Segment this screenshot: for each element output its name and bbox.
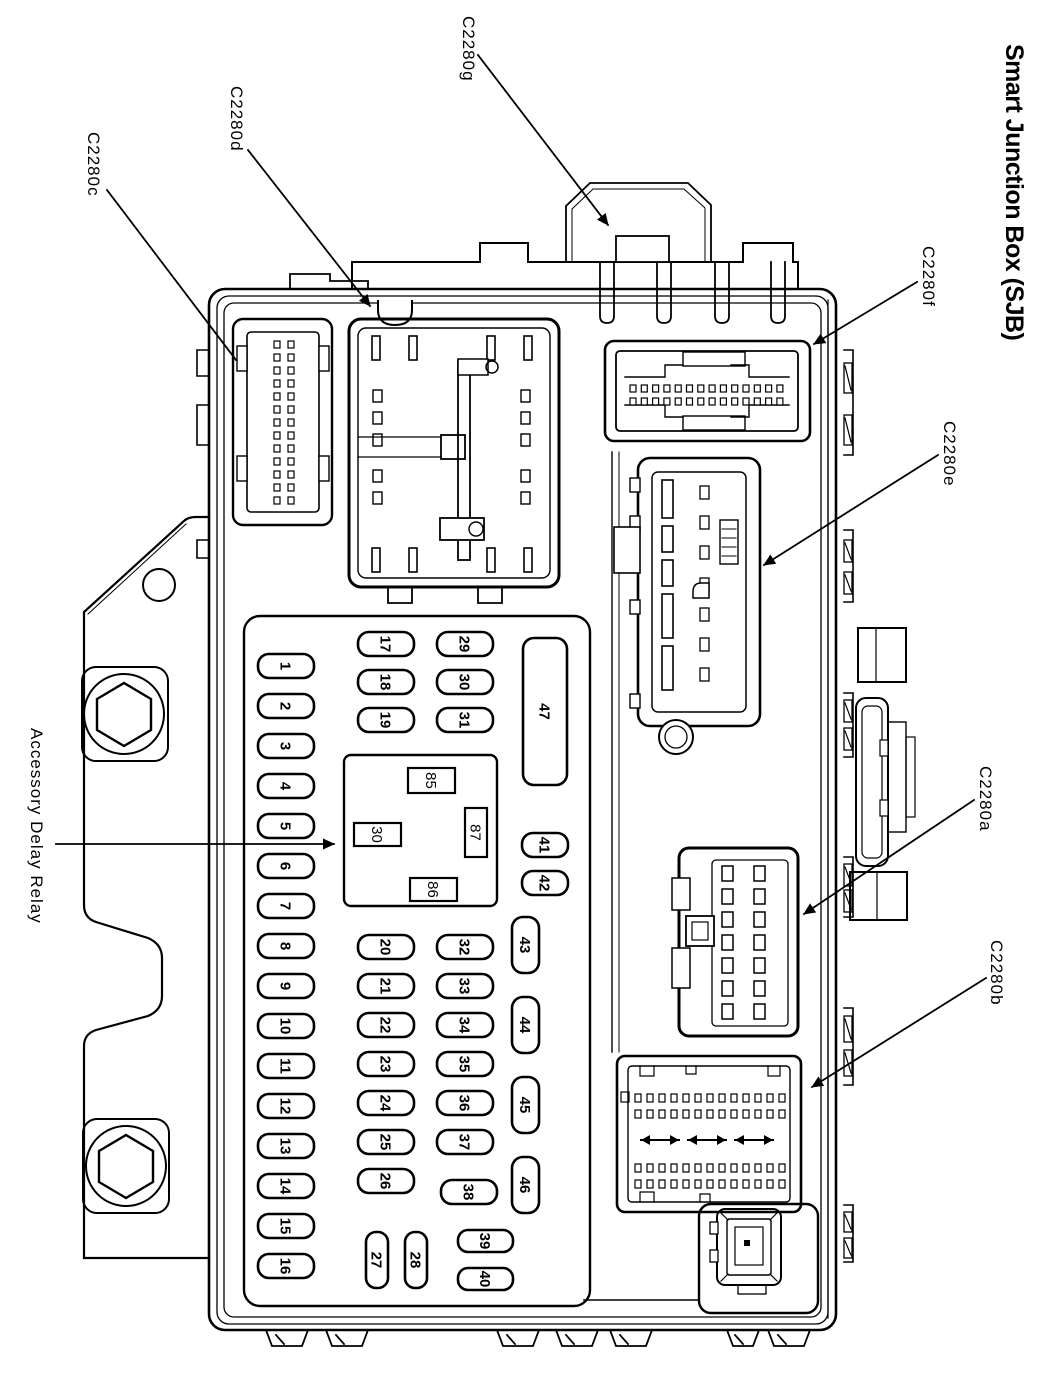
fuse-label: 17: [377, 636, 394, 653]
c2280c-leader-line: [107, 190, 236, 360]
fuse-label: 41: [536, 837, 553, 854]
left-bracket: [82, 517, 209, 1258]
fuse-13: 13: [258, 1134, 314, 1158]
fuse-18: 18: [358, 670, 414, 694]
fuse-layer: 1234567891011121314151617181920212223242…: [258, 632, 568, 1290]
fuse-label: 8: [277, 942, 294, 950]
fuse-46: 46: [512, 1157, 539, 1213]
fuse-47: 47: [523, 638, 567, 785]
relay-pin-layer: 85308786: [354, 768, 487, 901]
fuse-label: 24: [377, 1095, 394, 1112]
fuse-label: 7: [277, 902, 294, 910]
fuse-label: 46: [516, 1177, 533, 1194]
fuse-label: 3: [277, 742, 294, 750]
c2280d-leader-line: [248, 150, 370, 306]
connector-c2280b: [617, 1056, 801, 1212]
c2280a-pin-grid: [722, 866, 765, 1019]
fuse-panel: 85308786 1234567891011121314151617181920…: [244, 616, 590, 1306]
fuse-label: 14: [277, 1178, 294, 1195]
fuse-label: 28: [407, 1252, 424, 1269]
fuse-34: 34: [437, 1013, 493, 1037]
fuse-label: 30: [456, 674, 473, 691]
side-connector-profile: [856, 698, 915, 866]
fuse-37: 37: [437, 1130, 493, 1154]
fuse-33: 33: [437, 974, 493, 998]
fuse-10: 10: [258, 1014, 314, 1038]
fuse-2: 2: [258, 694, 314, 718]
fuse-label: 42: [536, 875, 553, 892]
fuse-label: 44: [516, 1017, 533, 1034]
fuse-45: 45: [512, 1077, 539, 1133]
fuse-label: 4: [277, 782, 294, 791]
fuse-43: 43: [512, 917, 539, 973]
right-edge-tabs: [844, 350, 853, 1262]
fuse-4: 4: [258, 774, 314, 798]
fuse-label: 16: [277, 1258, 294, 1275]
fuse-15: 15: [258, 1214, 314, 1238]
top-rail: [352, 243, 798, 323]
connector-c2280a: [672, 848, 798, 1036]
fuse-label: 43: [516, 937, 533, 954]
connector-c2280d: [349, 319, 559, 603]
fuse-40: 40: [458, 1268, 513, 1290]
fuse-6: 6: [258, 854, 314, 878]
fuse-1: 1: [258, 654, 314, 678]
fuse-8: 8: [258, 934, 314, 958]
relay-pin-label: 85: [422, 772, 439, 789]
fuse-label: 25: [377, 1134, 394, 1151]
fuse-label: 29: [456, 636, 473, 653]
c2280f-pin-grid: [630, 385, 783, 405]
fuse-16: 16: [258, 1254, 314, 1278]
relay-pin-label: 30: [368, 826, 385, 843]
hex-bolt-lower: [83, 1119, 169, 1213]
c2280e-slats: [662, 480, 673, 690]
fuse-label: 11: [277, 1058, 294, 1074]
connector-c2280g: [566, 183, 711, 262]
fuse-label: 36: [456, 1095, 473, 1112]
hex-bolt-upper: [82, 667, 168, 761]
fuse-label: 32: [456, 939, 473, 956]
label-c2280d: C2280d: [227, 86, 246, 152]
connector-c2280f: [605, 341, 810, 441]
relay-pin-label: 87: [467, 824, 484, 841]
fuse-23: 23: [358, 1052, 414, 1076]
fuse-label: 20: [377, 939, 394, 956]
fuse-label: 45: [516, 1097, 533, 1114]
fuse-label: 27: [368, 1252, 385, 1269]
label-c2280a: C2280a: [976, 766, 995, 832]
fuse-31: 31: [437, 708, 493, 732]
fuse-19: 19: [358, 708, 414, 732]
fuse-label: 34: [456, 1017, 473, 1034]
sjb-diagram-page: 85308786 1234567891011121314151617181920…: [0, 0, 1049, 1379]
fuse-42: 42: [522, 871, 568, 895]
fuse-label: 22: [377, 1017, 394, 1034]
label-c2280b: C2280b: [987, 940, 1006, 1006]
fuse-14: 14: [258, 1174, 314, 1198]
connector-c2280e: [614, 458, 760, 754]
fuse-3: 3: [258, 734, 314, 758]
fuse-26: 26: [358, 1169, 414, 1193]
relay-pin-30: 30: [354, 823, 401, 846]
right-edge-profile: [828, 300, 915, 1318]
fuse-11: 11: [258, 1054, 314, 1078]
fuse-label: 38: [460, 1184, 477, 1201]
fuse-label: 39: [476, 1233, 493, 1250]
label-c2280f: C2280f: [919, 246, 938, 307]
page-title: Smart Junction Box (SJB): [1000, 44, 1028, 341]
label-accessory-delay-relay: Accessory Delay Relay: [27, 728, 46, 924]
fuse-label: 2: [277, 702, 294, 710]
fuse-label: 9: [277, 982, 294, 990]
connector-c2280c: [233, 319, 332, 525]
fuse-29: 29: [437, 632, 493, 656]
fuse-35: 35: [437, 1052, 493, 1076]
fuse-36: 36: [437, 1091, 493, 1115]
fuse-label: 26: [377, 1173, 394, 1190]
fuse-27: 27: [366, 1232, 388, 1288]
fuse-12: 12: [258, 1094, 314, 1118]
c2280g-leader-line: [478, 55, 608, 225]
c2280b-leader-line: [812, 978, 986, 1087]
fuse-7: 7: [258, 894, 314, 918]
fuse-9: 9: [258, 974, 314, 998]
fuse-label: 35: [456, 1056, 473, 1073]
fuse-30: 30: [437, 670, 493, 694]
label-c2280c: C2280c: [84, 132, 103, 197]
fuse-44: 44: [512, 997, 539, 1053]
c2280c-pin-grid: [274, 341, 294, 504]
fuse-24: 24: [358, 1091, 414, 1115]
label-c2280g: C2280g: [459, 16, 478, 82]
fuse-label: 37: [456, 1134, 473, 1151]
fuse-label: 31: [456, 712, 473, 729]
fuse-17: 17: [358, 632, 414, 656]
fuse-label: 47: [536, 703, 553, 720]
relay-pin-label: 86: [424, 881, 441, 898]
fuse-label: 19: [377, 712, 394, 729]
fuse-label: 10: [277, 1018, 294, 1035]
fuse-label: 13: [277, 1138, 294, 1155]
sjb-diagram: 85308786 1234567891011121314151617181920…: [0, 0, 1049, 1379]
fuse-39: 39: [458, 1230, 513, 1252]
fuse-5: 5: [258, 814, 314, 838]
fuse-label: 5: [277, 822, 294, 830]
fuse-41: 41: [522, 833, 568, 857]
fuse-label: 23: [377, 1056, 394, 1073]
fuse-38: 38: [441, 1180, 497, 1204]
fuse-28: 28: [405, 1232, 427, 1288]
fuse-22: 22: [358, 1013, 414, 1037]
fuse-label: 6: [277, 862, 294, 870]
fuse-25: 25: [358, 1130, 414, 1154]
fuse-label: 33: [456, 978, 473, 995]
fuse-32: 32: [437, 935, 493, 959]
fuse-label: 18: [377, 674, 394, 691]
label-c2280e: C2280e: [940, 421, 959, 487]
relay-pin-87: 87: [465, 808, 487, 857]
square-module: [699, 1204, 818, 1313]
bottom-feet: [266, 1330, 810, 1346]
fuse-label: 12: [277, 1098, 294, 1115]
fuse-21: 21: [358, 974, 414, 998]
bracket-hole: [143, 569, 175, 601]
fuse-20: 20: [358, 935, 414, 959]
fuse-label: 40: [476, 1271, 493, 1288]
fuse-label: 21: [377, 978, 394, 995]
relay-pin-86: 86: [410, 878, 457, 901]
fuse-label: 1: [277, 662, 294, 670]
c2280b-key-slots: [641, 1135, 773, 1145]
fuse-label: 15: [277, 1218, 294, 1235]
relay-pin-85: 85: [408, 768, 455, 793]
